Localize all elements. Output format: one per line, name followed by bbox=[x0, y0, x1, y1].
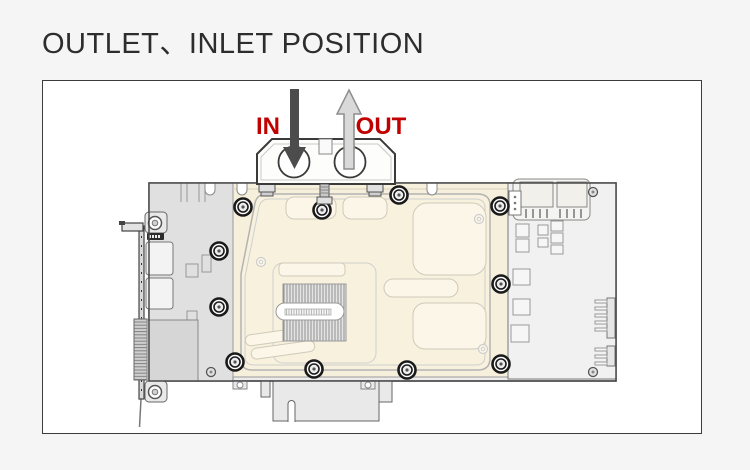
display-port bbox=[146, 242, 173, 275]
fan-header bbox=[509, 191, 521, 215]
standoff-hole bbox=[479, 345, 488, 354]
waterblock-face bbox=[233, 183, 508, 377]
pcie-fingers-short bbox=[379, 381, 392, 402]
bracket-top-tab bbox=[122, 223, 143, 231]
page-title: OUTLET、INLET POSITION bbox=[42, 20, 424, 62]
page: { "page": { "background_color": "#f5f5f5… bbox=[0, 0, 750, 470]
pcie-key-notch bbox=[288, 401, 295, 422]
display-port bbox=[146, 278, 173, 309]
power-connector-6pin bbox=[557, 182, 587, 207]
standoff-hole bbox=[257, 258, 266, 267]
bracket-tail bbox=[140, 399, 142, 427]
pcb-right-section bbox=[508, 179, 616, 379]
memory-pad bbox=[279, 263, 345, 276]
gpu-fins bbox=[276, 284, 346, 341]
vrm-pad bbox=[413, 203, 486, 275]
edge-stub bbox=[261, 381, 270, 397]
terminal-center-nub bbox=[319, 139, 332, 154]
vrm-pad bbox=[413, 303, 486, 349]
out-label: OUT bbox=[356, 113, 407, 140]
channel-wing bbox=[384, 279, 458, 297]
dvi-connector bbox=[134, 319, 147, 380]
in-label: IN bbox=[256, 113, 280, 140]
standoff-hole bbox=[475, 215, 484, 224]
dvi-body bbox=[147, 320, 198, 381]
pcie-edge-connector bbox=[233, 381, 392, 422]
vram-pad bbox=[343, 197, 387, 219]
gpu-waterblock-diagram: IN OUT bbox=[43, 81, 700, 432]
power-connector-8pin bbox=[520, 182, 553, 207]
diagram-frame: IN OUT bbox=[42, 80, 702, 434]
